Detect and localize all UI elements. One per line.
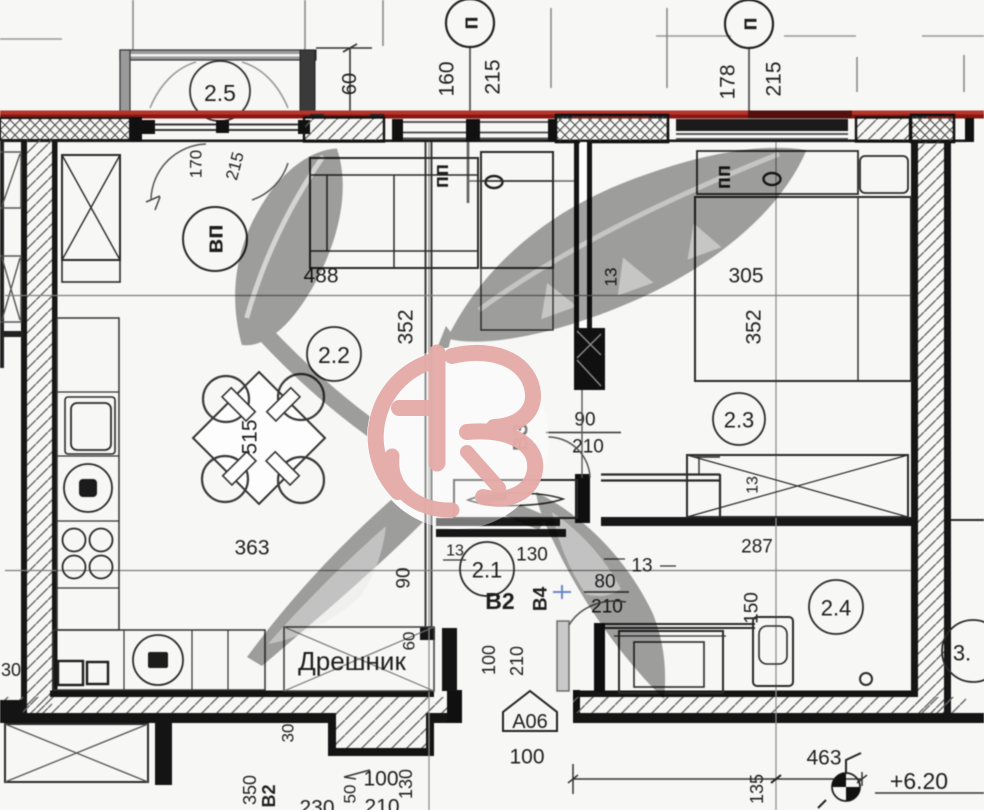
svg-text:2.3: 2.3	[724, 408, 755, 433]
svg-text:13: 13	[446, 543, 464, 560]
svg-text:2.5: 2.5	[204, 80, 236, 106]
svg-text:170: 170	[187, 150, 206, 178]
svg-text:350: 350	[240, 775, 260, 805]
svg-text:215: 215	[482, 59, 505, 94]
svg-text:210: 210	[507, 646, 527, 676]
svg-text:А06: А06	[512, 711, 548, 733]
svg-text:150: 150	[742, 592, 763, 624]
svg-text:90: 90	[394, 567, 415, 588]
svg-text:+6.20: +6.20	[890, 768, 948, 794]
svg-text:463: 463	[806, 747, 841, 770]
svg-text:160: 160	[436, 61, 459, 96]
svg-text:60: 60	[339, 73, 361, 95]
svg-text:13: 13	[631, 556, 652, 577]
svg-text:2.4: 2.4	[821, 596, 852, 621]
svg-text:В2: В2	[485, 588, 514, 614]
svg-text:210: 210	[572, 437, 604, 458]
svg-text:352: 352	[395, 309, 418, 344]
svg-text:2.1: 2.1	[472, 558, 503, 583]
svg-text:287: 287	[741, 537, 773, 558]
svg-text:30: 30	[279, 724, 298, 743]
svg-text:210: 210	[364, 796, 399, 810]
svg-text:178: 178	[717, 64, 740, 99]
svg-text:60: 60	[400, 632, 419, 651]
svg-text:п: п	[458, 16, 483, 29]
svg-text:130: 130	[516, 545, 548, 566]
svg-text:13: 13	[745, 476, 762, 494]
svg-text:30: 30	[1, 660, 21, 680]
svg-text:100: 100	[509, 746, 544, 769]
svg-text:В4: В4	[531, 586, 552, 611]
svg-text:352: 352	[743, 309, 766, 344]
svg-text:вп: вп	[202, 224, 229, 253]
svg-text:363: 363	[234, 537, 269, 560]
svg-text:п: п	[737, 17, 762, 30]
svg-text:100: 100	[479, 645, 499, 675]
svg-text:пп: пп	[431, 164, 453, 188]
svg-text:515: 515	[239, 419, 262, 454]
svg-text:50: 50	[341, 785, 360, 804]
svg-text:пм: пм	[152, 655, 164, 665]
svg-text:В2: В2	[259, 784, 279, 807]
svg-text:135: 135	[747, 774, 767, 804]
svg-text:Дрешник: Дрешник	[298, 646, 406, 676]
svg-text:3.: 3.	[953, 641, 971, 666]
svg-text:215: 215	[763, 61, 786, 96]
svg-text:90: 90	[574, 410, 595, 431]
svg-text:230: 230	[299, 797, 334, 810]
svg-text:305: 305	[728, 265, 763, 288]
svg-text:2.2: 2.2	[318, 342, 350, 368]
